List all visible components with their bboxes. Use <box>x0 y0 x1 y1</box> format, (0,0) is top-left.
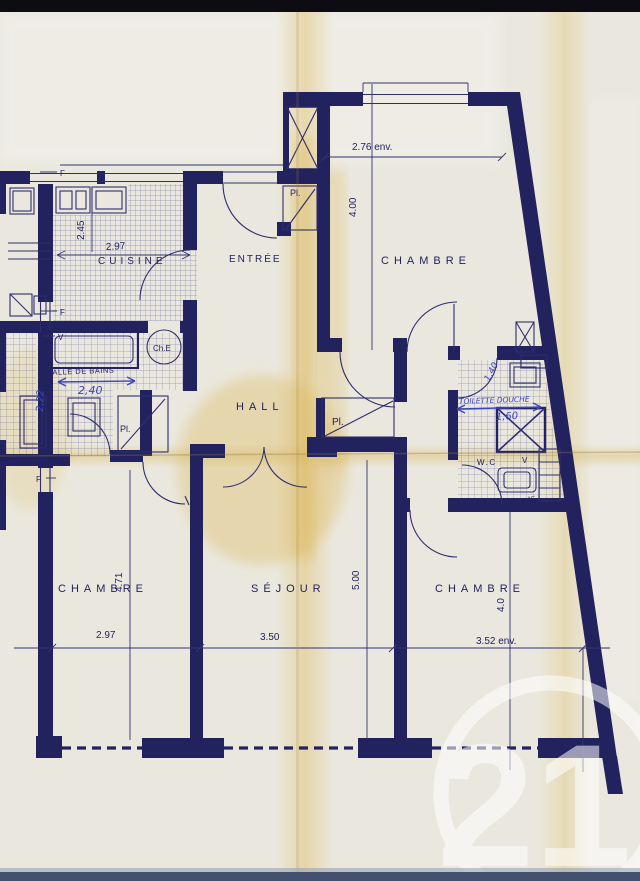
dim-chambre-top-depth: 4.00 <box>348 197 359 217</box>
room-label-cuisine: CUISINE <box>98 256 167 267</box>
dim-sejour-depth: 5.00 <box>351 570 362 590</box>
window-mark-2: F <box>60 308 65 317</box>
watermark: 21 <box>437 683 640 881</box>
dim-chambre-top-width: 2.76 env. <box>352 142 392 153</box>
room-label-chambre-top: CHAMBRE <box>381 255 471 267</box>
dim-chambre-right-width: 3.52 env. <box>476 636 516 647</box>
placard-label-bathroom: Pl. <box>120 424 131 434</box>
room-label-chambre-right: CHAMBRE <box>435 583 525 595</box>
window-mark-1: F <box>60 169 65 178</box>
placard-label-hall: Pl. <box>332 417 344 428</box>
room-label-hall: HALL <box>236 401 284 413</box>
vent-mark-2: V <box>522 456 528 465</box>
watermark-21: 21 <box>437 709 632 881</box>
air-inlet-2: AF <box>527 497 535 503</box>
dim-sejour-width: 3.50 <box>260 632 280 643</box>
floor-plan-drawing: CUISINE 2.97 2.45 ENTRÉE CHAMBRE 2.76 en… <box>0 0 640 881</box>
dim-cuisine-depth: 2.45 <box>76 220 87 240</box>
room-label-wc: W.C <box>477 458 497 467</box>
entrance-door <box>223 184 277 238</box>
dim-chambre-right-depth: 4.0 <box>496 598 507 612</box>
air-inlet-1: AF <box>510 356 518 362</box>
dim-chambre-left-width: 2.97 <box>96 630 116 641</box>
room-label-chambre-left: CHAMBRE <box>58 583 148 595</box>
vent-mark-1: V <box>58 333 64 342</box>
bedroom-top-hall-door <box>340 352 395 407</box>
toilette-width: 1,60 <box>496 411 519 423</box>
dim-cuisine-width: 2.97 <box>106 241 126 253</box>
window-mark-3: F <box>36 475 41 484</box>
sdb-depth: 2,22 <box>35 389 47 412</box>
floor-plan-scan: CUISINE 2.97 2.45 ENTRÉE CHAMBRE 2.76 en… <box>0 0 640 881</box>
room-label-entree: ENTRÉE <box>229 252 282 265</box>
water-heater-label: Ch.E <box>153 344 171 353</box>
dim-chambre-left-depth: 4.71 <box>114 572 125 592</box>
bedroom-right-door <box>410 510 457 557</box>
bedroom-top-door <box>407 302 457 352</box>
sdb-width: 2,40 <box>78 384 103 397</box>
room-label-sejour: SÉJOUR <box>251 582 326 595</box>
